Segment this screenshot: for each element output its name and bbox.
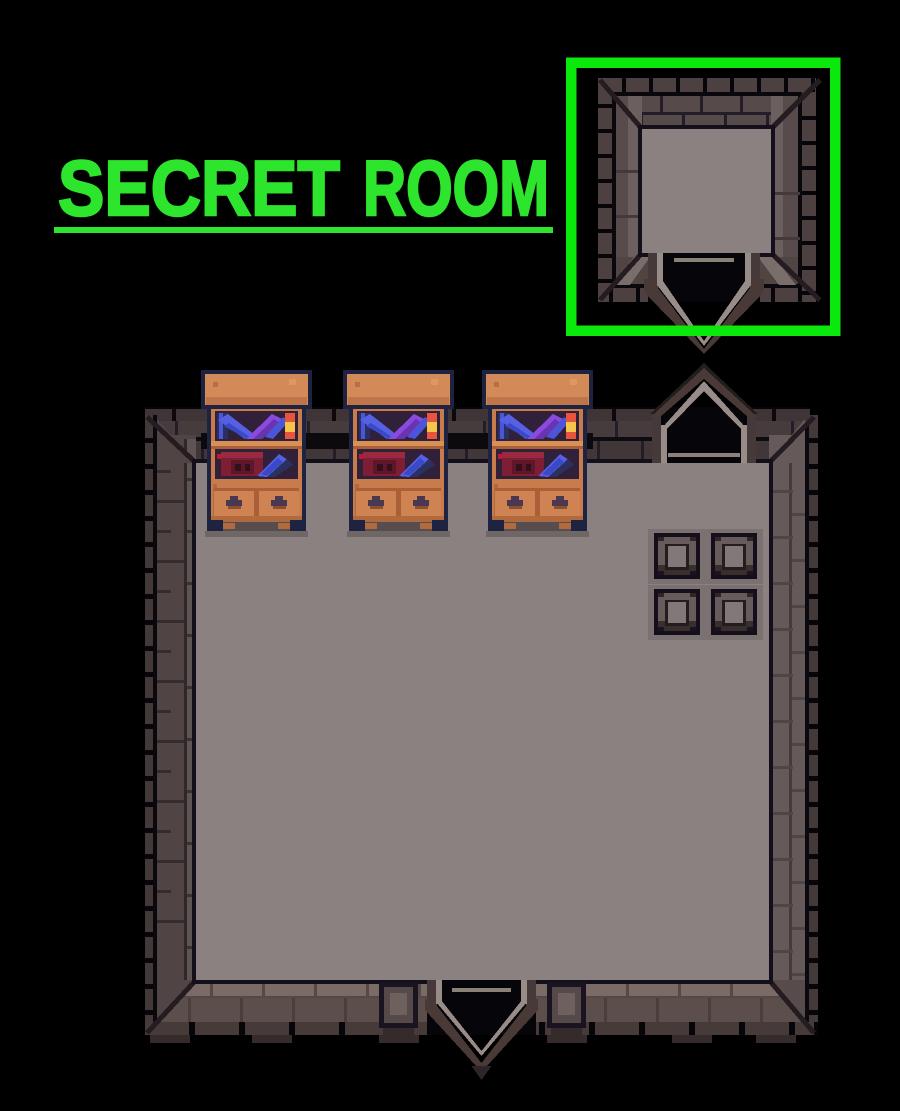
svg-text:SECRET: SECRET	[58, 144, 340, 232]
svg-text:ROOM: ROOM	[363, 144, 549, 232]
